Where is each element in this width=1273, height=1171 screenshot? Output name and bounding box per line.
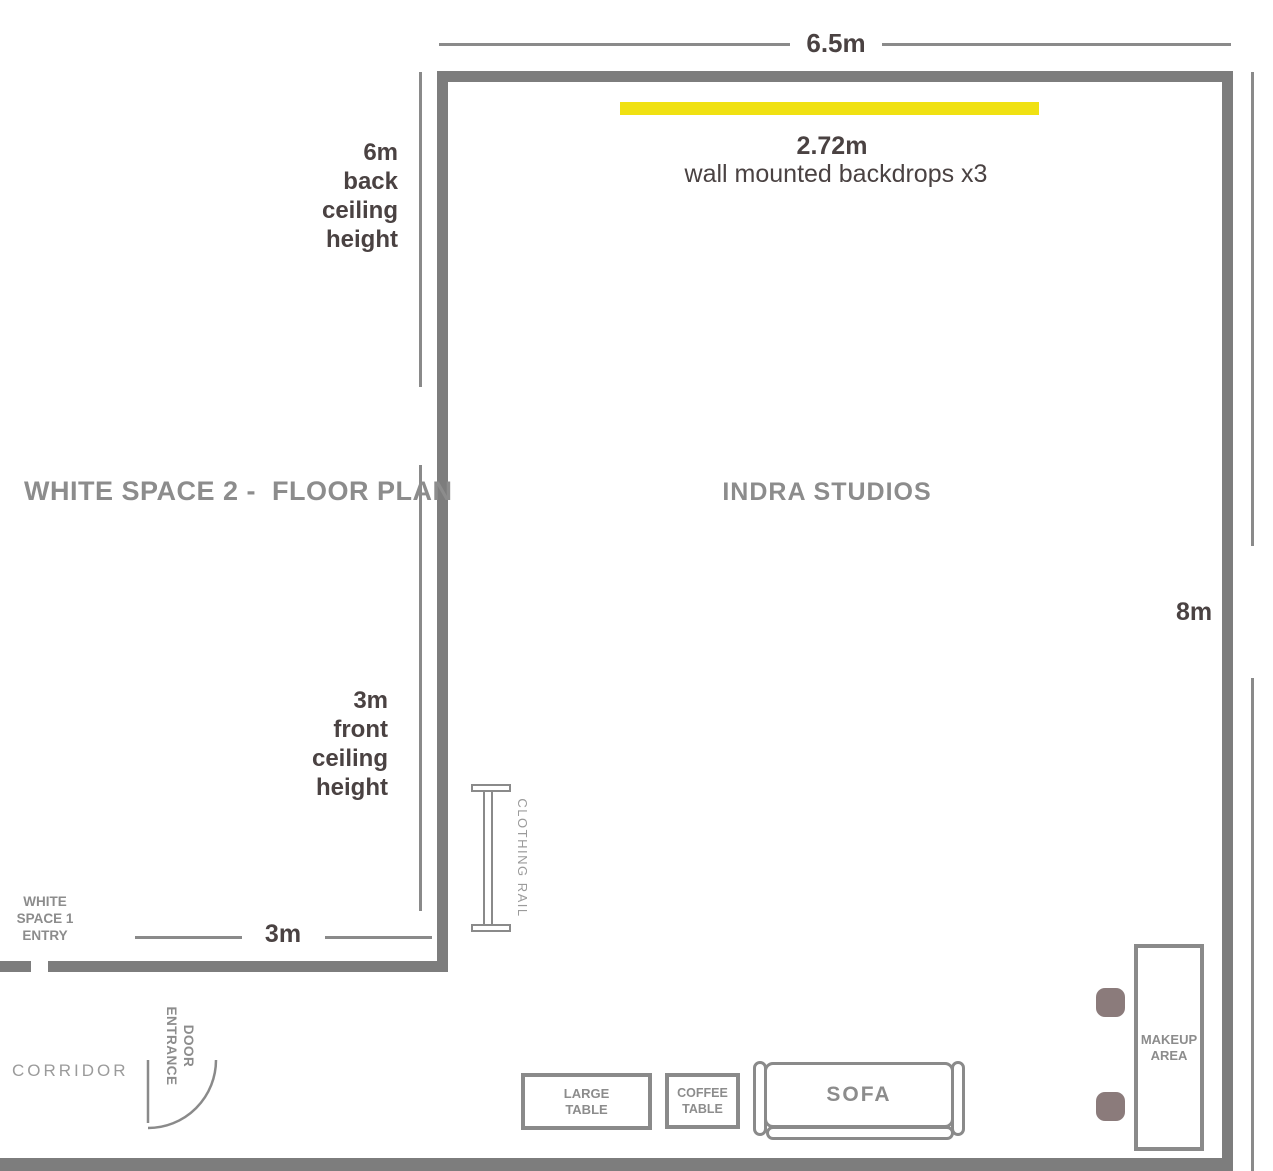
coffee-table: COFFEE TABLE	[665, 1073, 740, 1129]
dim-label-top-width: 6.5m	[790, 28, 882, 59]
clothing-rail-bar	[483, 790, 493, 927]
dim-label-right-height: 8m	[1176, 598, 1212, 627]
clothing-rail-bottom-cap	[471, 924, 511, 932]
page-title: WHITE SPACE 2 - FLOOR PLAN	[24, 476, 453, 507]
label-backdrop-note: wall mounted backdrops x3	[636, 160, 1036, 189]
wall-left	[437, 71, 448, 972]
sofa-seat: SOFA	[764, 1062, 954, 1128]
dim-line-top-right	[882, 43, 1231, 46]
sofa-back-rail	[766, 1126, 954, 1140]
dim-line-left-back	[419, 72, 422, 387]
studio-name: INDRA STUDIOS	[677, 478, 977, 507]
door-swing-icon	[140, 1055, 230, 1140]
wall-top	[437, 71, 1233, 82]
label-corridor: CORRIDOR	[12, 1061, 129, 1081]
large-table: LARGE TABLE	[521, 1073, 652, 1130]
dim-line-right-top	[1251, 72, 1254, 546]
dim-line-right-bottom	[1251, 678, 1254, 1171]
floor-plan: 6.5m 6m back ceiling height 3m front cei…	[0, 0, 1273, 1171]
label-back-ceiling-height: 6m back ceiling height	[198, 138, 398, 254]
makeup-stool-top	[1096, 988, 1125, 1017]
wall-bottom	[0, 1158, 1233, 1171]
label-white-space-1-entry: WHITE SPACE 1 ENTRY	[8, 893, 82, 944]
dim-line-left-front	[419, 465, 422, 911]
sofa-label: SOFA	[826, 1083, 891, 1107]
makeup-stool-bottom	[1096, 1092, 1125, 1121]
label-front-ceiling-height: 3m front ceiling height	[188, 686, 388, 802]
wall-right	[1222, 71, 1233, 1171]
label-backdrop-width: 2.72m	[732, 132, 932, 161]
makeup-area: MAKEUP AREA	[1134, 944, 1204, 1151]
dim-label-entry-width: 3m	[243, 920, 323, 949]
dim-line-top-left	[439, 43, 790, 46]
wall-entry-right-segment	[48, 961, 448, 972]
dim-line-entry-right	[325, 936, 432, 939]
wall-mounted-backdrop-bar	[620, 102, 1039, 115]
label-clothing-rail: CLOTHING RAIL	[514, 798, 530, 918]
wall-entry-left-stub	[0, 961, 31, 972]
dim-line-entry-left	[135, 936, 242, 939]
